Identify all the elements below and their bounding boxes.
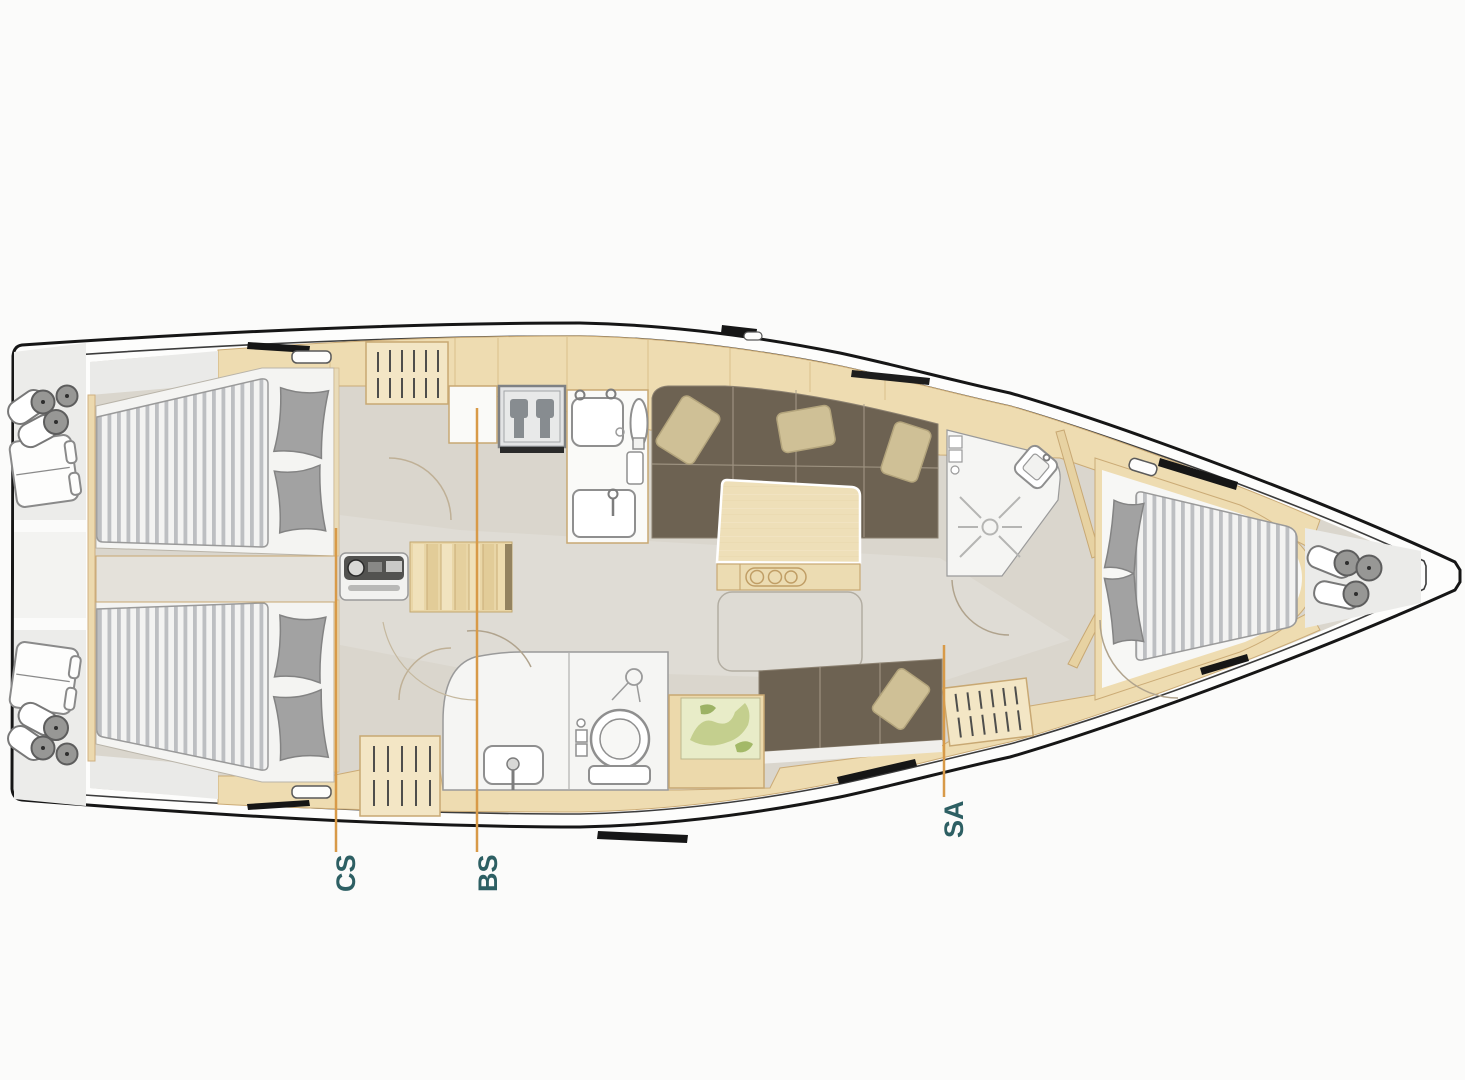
svg-text:SA: SA [939,800,969,838]
svg-text:BS: BS [473,854,503,892]
svg-text:CS: CS [331,854,361,892]
